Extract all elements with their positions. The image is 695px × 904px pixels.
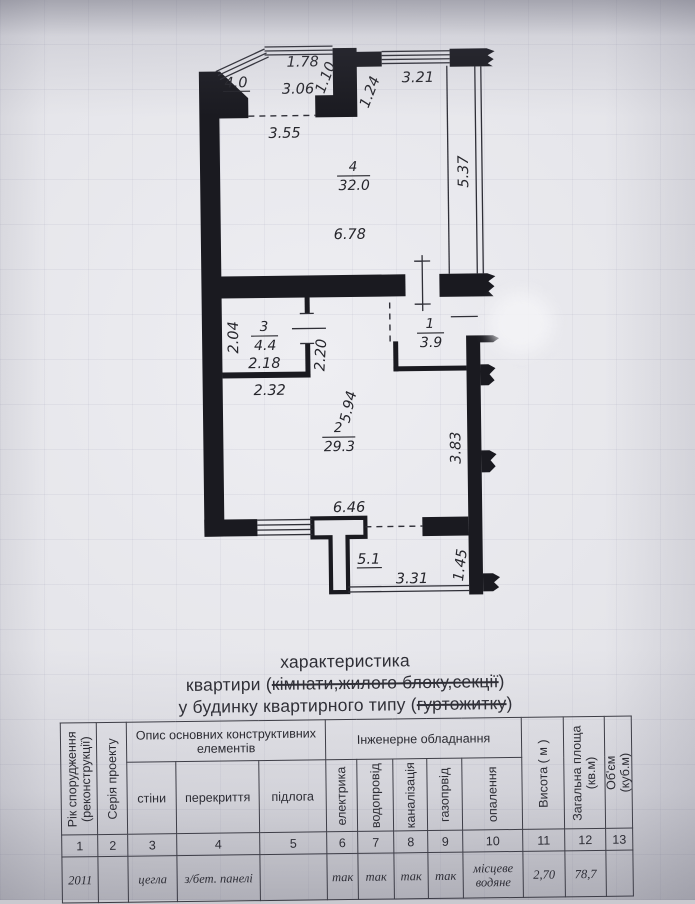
value-height: 2,70	[523, 851, 566, 898]
value-heating: місцеве водяне	[463, 851, 524, 898]
value-year: 2011	[62, 857, 99, 903]
header-floor: підлога	[259, 760, 327, 833]
group-header-engineering: Інженерне обладнання	[325, 717, 521, 759]
header-gas: газопрвід	[427, 758, 463, 830]
value-volume	[606, 850, 634, 896]
floor-plan-svg: 4.0 1.78 1.10 3.06 1.24 3.21 3.55 5.37 6…	[0, 0, 695, 654]
header-year: Рік спорудження(реконструкції)	[60, 723, 97, 835]
header-walls: стіни	[127, 762, 177, 835]
col-number: 5	[260, 832, 327, 855]
room-number: 1	[426, 316, 435, 332]
room-number: 4	[349, 159, 358, 175]
wall-middle	[220, 274, 405, 298]
dim-label: 3.31	[396, 571, 428, 587]
dim-label: 5.37	[456, 155, 472, 188]
header-series: Серія проекту	[96, 722, 127, 834]
col-number: 3	[128, 834, 177, 857]
col-number: 1	[62, 835, 98, 857]
plan-dashed-lines	[248, 114, 422, 528]
dim-label: 4.0	[224, 75, 247, 91]
dashed-bottom-opening	[365, 526, 422, 527]
value-floor	[260, 854, 328, 901]
wall-bottom-right-seg	[422, 517, 468, 537]
header-floors-structure: перекриття	[176, 761, 260, 834]
room-area: 32.0	[339, 178, 370, 194]
value-total-area: 78,7	[565, 850, 607, 896]
header-height: Висота ( м )	[521, 717, 564, 830]
wall-left	[199, 71, 254, 537]
whiteout-blob	[489, 291, 554, 354]
header-water: водопровід	[357, 759, 394, 831]
col-number: 4	[177, 833, 260, 856]
scanned-page: 4.0 1.78 1.10 3.06 1.24 3.21 3.55 5.37 6…	[0, 0, 695, 900]
dim-label: 3.21	[402, 70, 434, 86]
room-number: 2	[334, 420, 343, 436]
wall-right-pilaster-1	[480, 364, 495, 385]
wall-top-right-break	[450, 48, 495, 67]
dim-label: 1.78	[286, 54, 318, 70]
struck-text: кімнати,жилого блоку,секції	[272, 671, 499, 694]
col-number: 12	[565, 828, 606, 850]
header-electricity: електрика	[326, 759, 358, 831]
dim-label: 3.55	[268, 126, 300, 142]
wall-right-bottom-break	[483, 573, 500, 591]
dim-label: 2.32	[253, 383, 285, 399]
col-number: 11	[523, 829, 565, 852]
value-water: так	[358, 853, 395, 899]
dim-label: 1.45	[451, 548, 471, 582]
room-area: 4.4	[254, 338, 276, 354]
wall-bottom-left	[204, 519, 257, 537]
col-number: 13	[606, 828, 633, 850]
dim-label: 2.20	[312, 338, 330, 371]
header-heating: опалення	[462, 757, 523, 830]
col-number: 7	[358, 831, 394, 853]
dim-label: 6.78	[334, 227, 366, 243]
col-number: 6	[327, 831, 358, 853]
group-header-construction: Опис основних конструктивних елементів	[126, 720, 326, 762]
wall-right-pilaster-2	[481, 450, 496, 472]
partition-room3-bottom	[222, 371, 310, 378]
window-3-21	[382, 51, 450, 64]
door-main	[414, 255, 431, 311]
dim-label: 5.1	[357, 552, 380, 568]
col-number: 2	[98, 834, 128, 856]
dim-label: 6.46	[333, 500, 365, 516]
room4-right-face	[447, 66, 450, 274]
window-5-37	[475, 66, 484, 273]
dim-label: 2.04	[226, 321, 242, 353]
dim-label: 3.83	[448, 431, 464, 463]
room-number: 3	[260, 319, 269, 335]
window-room2-bottom	[257, 519, 312, 535]
col-number: 9	[428, 830, 463, 852]
value-sewage: так	[394, 853, 429, 899]
col-number: 8	[394, 831, 428, 853]
header-sewage: каналізація	[393, 759, 428, 831]
dim-label: 2.18	[248, 356, 280, 372]
value-walls: цегла	[128, 856, 178, 903]
wall-right-break	[439, 273, 495, 297]
characteristics-table: Рік спорудження(реконструкції) Серія про…	[60, 716, 634, 904]
dashed-balcony-opening	[248, 115, 315, 116]
struck-text: гуртожитку	[417, 693, 507, 714]
document-heading: характеристика квартири (кімнати,жилого …	[65, 647, 626, 720]
header-total-area: Загальна площа(кв.м)	[563, 716, 605, 828]
dim-label: 1.24	[357, 74, 384, 110]
partition-room3-right-a	[305, 297, 310, 313]
room-area: 29.3	[324, 439, 355, 455]
page-content: 4.0 1.78 1.10 3.06 1.24 3.21 3.55 5.37 6…	[0, 0, 695, 904]
col-number: 10	[463, 829, 523, 852]
partition-room1-bottom	[393, 366, 466, 372]
value-gas: так	[428, 852, 464, 898]
value-electricity: так	[327, 853, 359, 899]
room-area: 3.9	[420, 335, 443, 351]
value-floors-structure: з/бет. панелі	[177, 855, 261, 902]
dim-label: 3.06	[282, 81, 314, 97]
header-volume: Об'єм(куб.м)	[604, 716, 632, 828]
value-series	[98, 856, 129, 902]
